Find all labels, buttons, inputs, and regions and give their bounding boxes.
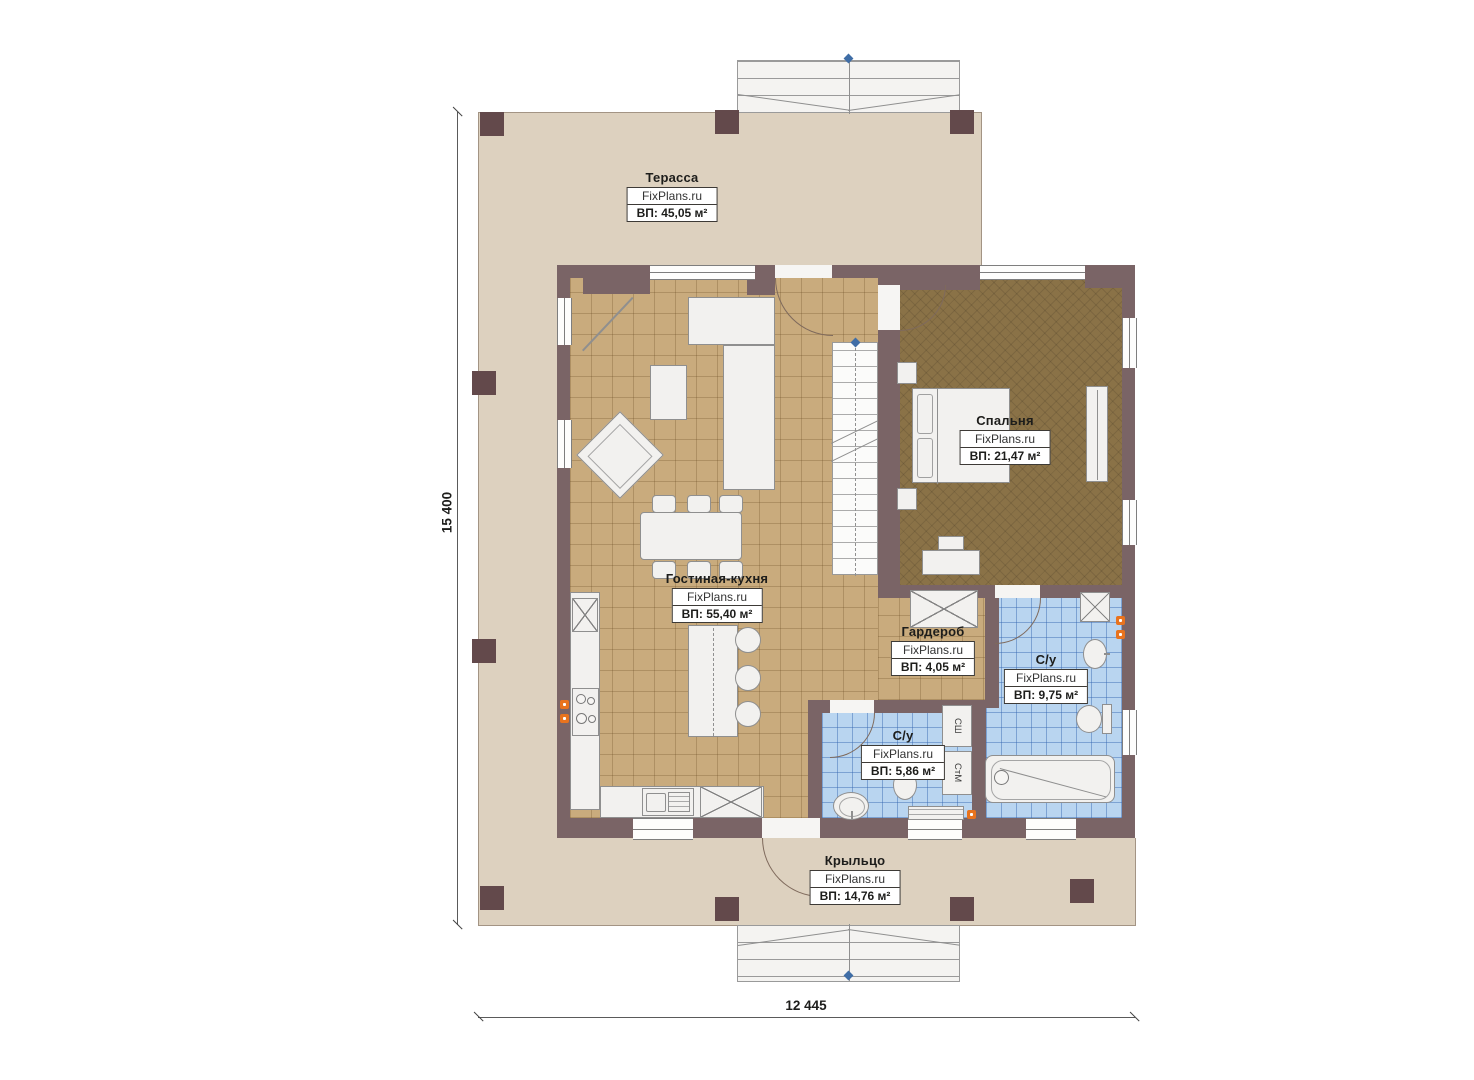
pillar [715, 897, 739, 921]
steps-slope-line [848, 94, 960, 111]
dimension-line-horizontal [478, 1017, 1135, 1018]
bar-stool [735, 627, 761, 653]
window-bedroom-north [980, 265, 1085, 280]
kitchen-sink [642, 788, 694, 816]
burner [576, 694, 586, 704]
dining-table [640, 512, 742, 560]
dining-chair [687, 495, 711, 513]
room-area: ВП: 45,05 м² [628, 205, 717, 221]
room-area: ВП: 21,47 м² [961, 448, 1050, 464]
room-name: Гардероб [891, 624, 975, 639]
washing-machine-label: СтМ [943, 752, 971, 794]
tap [1104, 653, 1110, 655]
bedroom-wardrobe [1086, 386, 1108, 482]
window-bedroom-east-2 [1122, 500, 1137, 545]
room-label-bedroom: Спальня FixPlans.ru ВП: 21,47 м² [960, 413, 1051, 465]
door-gap-terrace [775, 265, 832, 278]
room-label-wardrobe: Гардероб FixPlans.ru ВП: 4,05 м² [891, 624, 975, 676]
staircase [832, 342, 878, 575]
steps-slope-line [848, 929, 960, 946]
pillar [480, 886, 504, 910]
window-living-west-1 [557, 298, 572, 345]
dresser-top [938, 536, 964, 550]
watermark: FixPlans.ru [892, 642, 974, 659]
label-box: FixPlans.ru ВП: 4,05 м² [891, 641, 975, 676]
outlet-icon [1116, 630, 1125, 639]
door-gap-entrance [762, 818, 820, 838]
outlet-icon [560, 714, 569, 723]
burner [587, 697, 595, 705]
window-living-north [650, 265, 755, 280]
dining-chair [652, 495, 676, 513]
window-bath-big-south [1026, 818, 1076, 840]
corner-sofa-top [688, 297, 775, 345]
dining-chair [719, 495, 743, 513]
room-name: Гостиная-кухня [666, 571, 768, 586]
drying-cabinet: СШ [942, 705, 972, 747]
terrace-deck-top [478, 112, 982, 267]
burner [588, 715, 596, 723]
steps-center-line [849, 61, 850, 114]
kitchen-island [688, 625, 738, 737]
dresser [922, 550, 980, 575]
bar-stool [735, 665, 761, 691]
watermark: FixPlans.ru [628, 188, 717, 205]
steps-slope-line [738, 929, 850, 946]
kitchen-cabinet [700, 786, 762, 818]
island-divider [713, 628, 715, 736]
wall-chunk [1085, 278, 1122, 288]
room-name: С/у [861, 728, 945, 743]
bathtub-drain [994, 770, 1009, 785]
dish-rack [668, 792, 690, 812]
tap [851, 811, 853, 820]
burner [576, 713, 587, 724]
pillow [917, 394, 933, 434]
room-area: ВП: 55,40 м² [673, 606, 762, 622]
drying-cabinet-label: СШ [943, 706, 971, 746]
bed-headboard-line [937, 389, 938, 484]
toilet-tank [1102, 704, 1112, 734]
wall-bath-small-west [808, 713, 822, 818]
exterior-steps-top [737, 60, 960, 113]
pillar [480, 112, 504, 136]
bath-cabinet [1080, 592, 1110, 622]
door-gap-bath-big [995, 585, 1040, 598]
outlet-icon [1116, 616, 1125, 625]
bathtub [985, 755, 1115, 803]
washbasin [833, 792, 869, 820]
room-name: С/у [1004, 652, 1088, 667]
window-living-west-2 [557, 420, 572, 468]
watermark: FixPlans.ru [811, 871, 900, 888]
terrace-deck-left [478, 265, 558, 926]
wardrobe-cabinet [910, 590, 978, 628]
window-bedroom-east-1 [1122, 318, 1137, 368]
pillow [917, 438, 933, 478]
room-name: Спальня [960, 413, 1051, 428]
wall-chunk [583, 278, 650, 294]
room-label-bath-big: С/у FixPlans.ru ВП: 9,75 м² [1004, 652, 1088, 704]
room-area: ВП: 4,05 м² [892, 659, 974, 675]
room-area: ВП: 5,86 м² [862, 763, 944, 779]
label-box: FixPlans.ru ВП: 5,86 м² [861, 745, 945, 780]
corner-sofa-side [723, 345, 775, 490]
washing-machine: СтМ [942, 751, 972, 795]
sink-basin [646, 793, 666, 812]
pillar [472, 371, 496, 395]
nightstand [897, 488, 917, 510]
label-box: FixPlans.ru ВП: 45,05 м² [627, 187, 718, 222]
room-name: Терасса [627, 170, 718, 185]
door-gap-bedroom [878, 285, 900, 330]
dimension-value-horizontal: 12 445 [756, 998, 856, 1013]
shower-tray [908, 806, 964, 820]
label-box: FixPlans.ru ВП: 55,40 м² [672, 588, 763, 623]
dimension-line-vertical [457, 112, 458, 925]
house-outline: СШ СтМ [557, 265, 1135, 838]
label-box: FixPlans.ru ВП: 9,75 м² [1004, 669, 1088, 704]
outlet-icon [560, 700, 569, 709]
watermark: FixPlans.ru [1005, 670, 1087, 687]
wall-between-baths [972, 713, 986, 818]
room-label-bath-small: С/у FixPlans.ru ВП: 5,86 м² [861, 728, 945, 780]
watermark: FixPlans.ru [961, 431, 1050, 448]
room-label-living: Гостиная-кухня FixPlans.ru ВП: 55,40 м² [666, 571, 768, 623]
room-label-terrace: Терасса FixPlans.ru ВП: 45,05 м² [627, 170, 718, 222]
fridge [572, 598, 598, 632]
toilet [1076, 705, 1102, 733]
room-area: ВП: 9,75 м² [1005, 687, 1087, 703]
stair-center-line [855, 343, 857, 576]
pillar [950, 110, 974, 134]
label-box: FixPlans.ru ВП: 21,47 м² [960, 430, 1051, 465]
room-area: ВП: 14,76 м² [811, 888, 900, 904]
label-box: FixPlans.ru ВП: 14,76 м² [810, 870, 901, 905]
coffee-table [650, 365, 687, 420]
nightstand [897, 362, 917, 384]
room-name: Крыльцо [810, 853, 901, 868]
pillar [1070, 879, 1094, 903]
outlet-icon [967, 810, 976, 819]
pillar [472, 639, 496, 663]
window-bath-small-south [908, 818, 962, 840]
room-label-porch: Крыльцо FixPlans.ru ВП: 14,76 м² [810, 853, 901, 905]
bar-stool [735, 701, 761, 727]
wall-chunk [747, 278, 775, 295]
pillar [950, 897, 974, 921]
window-bath-east [1122, 710, 1137, 755]
watermark: FixPlans.ru [862, 746, 944, 763]
window-kitchen-south [633, 818, 693, 840]
pillar [715, 110, 739, 134]
floor-plan: СШ СтМ Терасса FixPlans.ru ВП: 45,05 м² … [0, 0, 1474, 1080]
door-gap-bath-small [830, 700, 874, 713]
stove [572, 688, 599, 736]
watermark: FixPlans.ru [673, 589, 762, 606]
wardrobe-door-line [1097, 390, 1098, 480]
steps-slope-line [738, 94, 850, 111]
dimension-value-vertical: 15 400 [440, 463, 455, 563]
